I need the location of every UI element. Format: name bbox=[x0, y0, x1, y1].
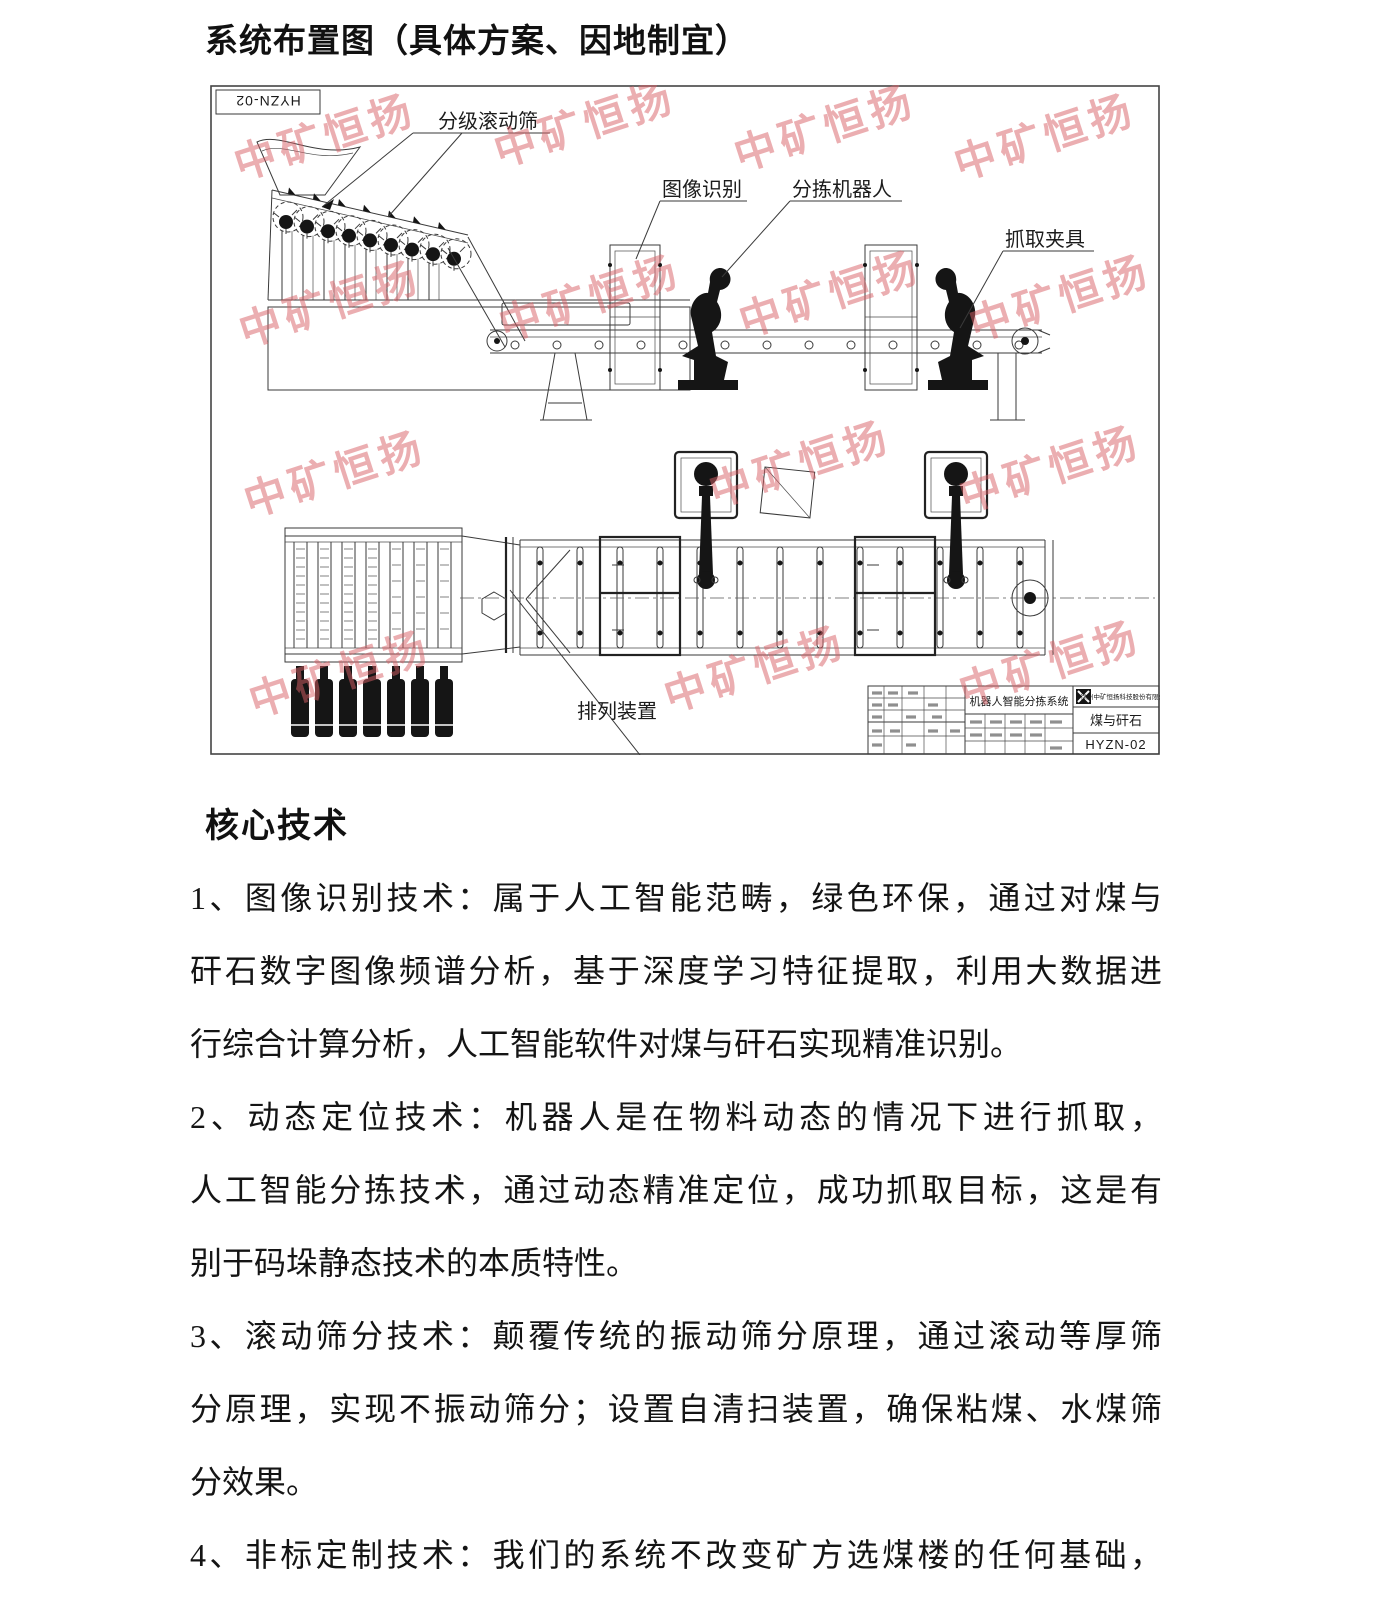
paragraph-line: 3、滚动筛分技术：颠覆传统的振动筛分原理，通过滚动等厚筛 bbox=[190, 1300, 1162, 1373]
body-text: 1、图像识别技术：属于人工智能范畴，绿色环保，通过对煤与矸石数字图像频谱分析，基… bbox=[190, 862, 1162, 1592]
paragraph-line: 1、图像识别技术：属于人工智能范畴，绿色环保，通过对煤与 bbox=[190, 862, 1162, 935]
paragraph-line: 分原理，实现不振动筛分；设置自清扫装置，确保粘煤、水煤筛 bbox=[190, 1373, 1162, 1446]
label-arranging-device: 排列装置 bbox=[577, 700, 657, 723]
paragraph-line: 矸石数字图像频谱分析，基于深度学习特征提取，利用大数据进 bbox=[190, 935, 1162, 1008]
title-block-product: 煤与矸石 bbox=[1090, 713, 1142, 728]
label-image-recognition: 图像识别 bbox=[662, 178, 742, 201]
paragraph-line: 2、动态定位技术：机器人是在物料动态的情况下进行抓取， bbox=[190, 1081, 1162, 1154]
label-sorting-robot: 分拣机器人 bbox=[792, 178, 892, 201]
paragraph-line: 别于码垛静态技术的本质特性。 bbox=[190, 1227, 1162, 1300]
title-block-company: 徐州中矿恒扬科技股份有限公司 bbox=[1081, 692, 1161, 701]
paragraph-line: 分效果。 bbox=[190, 1446, 1162, 1519]
system-layout-drawing: HYZN-02 bbox=[210, 85, 1160, 755]
page-title: 系统布置图（具体方案、因地制宜） bbox=[205, 14, 749, 62]
corner-code: HYZN-02 bbox=[235, 93, 300, 109]
label-gripper: 抓取夹具 bbox=[1005, 228, 1085, 251]
section-heading: 核心技术 bbox=[205, 798, 349, 847]
paragraph-line: 人工智能分拣技术，通过动态精准定位，成功抓取目标，这是有 bbox=[190, 1154, 1162, 1227]
title-block-drawing-no: HYZN-02 bbox=[1085, 737, 1146, 752]
paragraph-line: 行综合计算分析，人工智能软件对煤与矸石实现精准识别。 bbox=[190, 1008, 1162, 1081]
paragraph-line: 4、非标定制技术：我们的系统不改变矿方选煤楼的任何基础， bbox=[190, 1519, 1162, 1592]
document-page: 系统布置图（具体方案、因地制宜） HYZN-02 bbox=[0, 0, 1391, 1600]
